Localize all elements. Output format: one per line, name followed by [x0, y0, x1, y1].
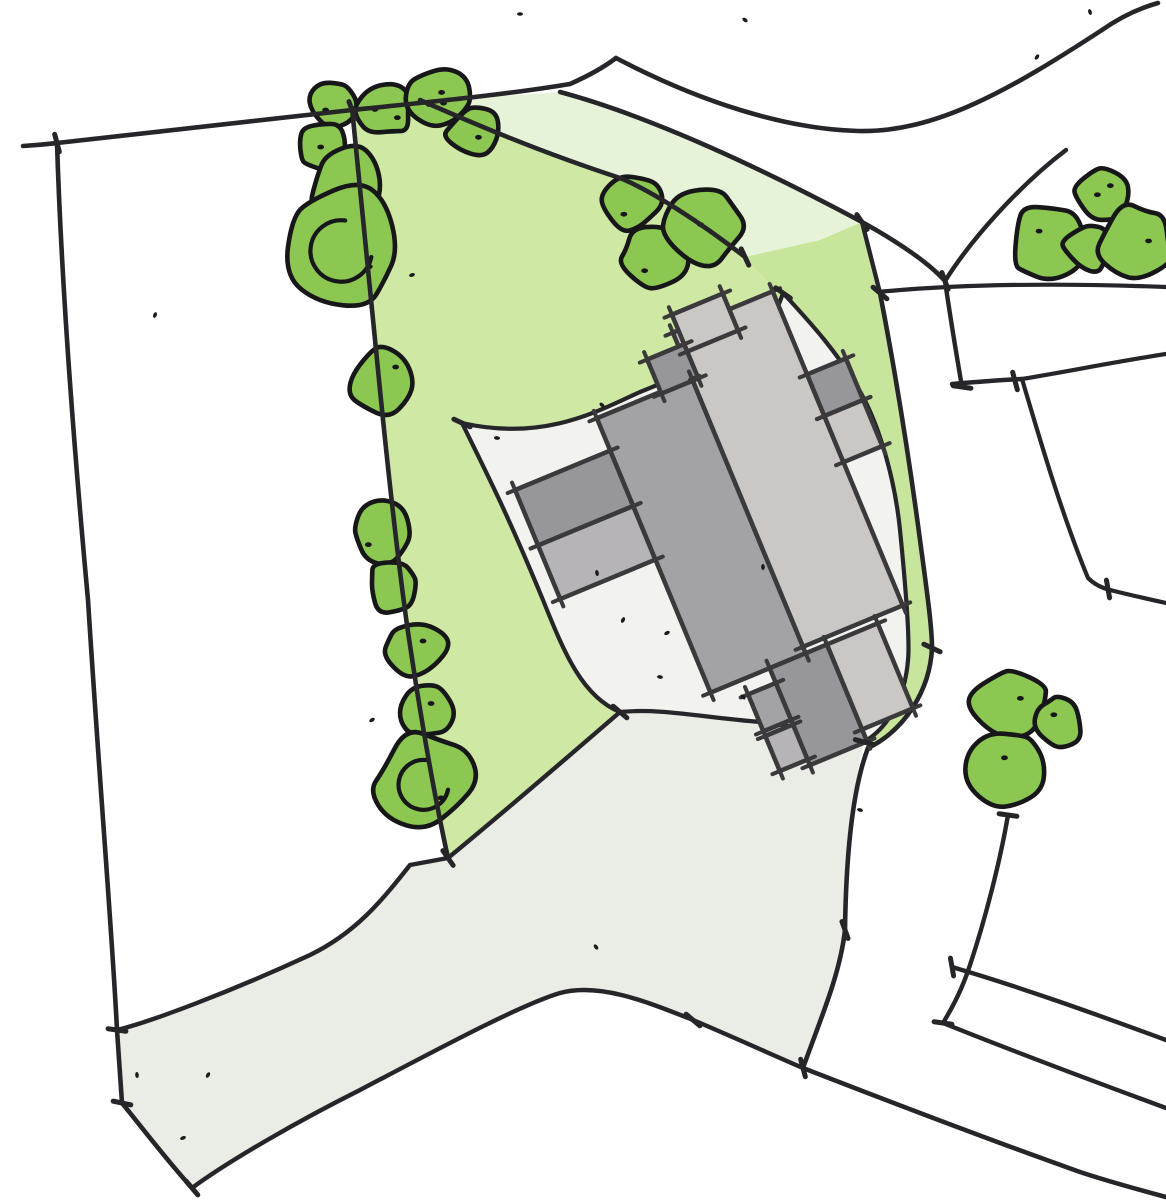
boundary-junction-tick	[108, 1029, 126, 1032]
tree-canopy-blob	[355, 500, 409, 564]
tree-trunk-dot	[620, 212, 627, 217]
tree-trunk-dot	[475, 135, 482, 140]
tree-trunk-dot	[365, 542, 372, 547]
tree-trunk-dot	[1094, 192, 1101, 197]
boundary-junction-tick	[934, 1022, 952, 1025]
tree-trunk-dot	[392, 365, 399, 370]
boundary-junction-tick	[999, 814, 1017, 817]
tree-trunk-dot	[438, 90, 445, 95]
tree-trunk-dot	[1017, 696, 1024, 701]
tree-trunk-dot	[1107, 183, 1114, 188]
tree-canopy	[400, 685, 454, 734]
tree-trunk-dot	[438, 796, 445, 801]
tree-trunk-dot	[394, 115, 401, 120]
boundary-junction-tick	[953, 386, 971, 389]
tree-trunk-dot	[1036, 229, 1043, 234]
site-plan-canvas	[0, 0, 1166, 1200]
tree-canopy-blob	[372, 562, 416, 612]
tree-canopy	[355, 500, 409, 564]
ink-speck	[517, 12, 523, 16]
tree-trunk-dot	[1001, 755, 1008, 760]
tree-trunk-dot	[641, 268, 648, 273]
tree-trunk-dot	[1050, 712, 1057, 717]
tree-canopy-blob	[965, 734, 1044, 807]
tree-canopy	[965, 734, 1044, 807]
tree-canopy	[372, 562, 416, 612]
boundary-junction-tick	[1106, 580, 1109, 598]
tree-trunk-dot	[1145, 239, 1152, 244]
tree-trunk-dot	[420, 639, 427, 644]
boundary-junction-tick	[950, 958, 953, 976]
tree-canopy-blob	[400, 685, 454, 734]
tree-trunk-dot	[428, 701, 435, 706]
tree-trunk-dot	[317, 145, 324, 150]
site-plan-sketch	[0, 0, 1166, 1200]
